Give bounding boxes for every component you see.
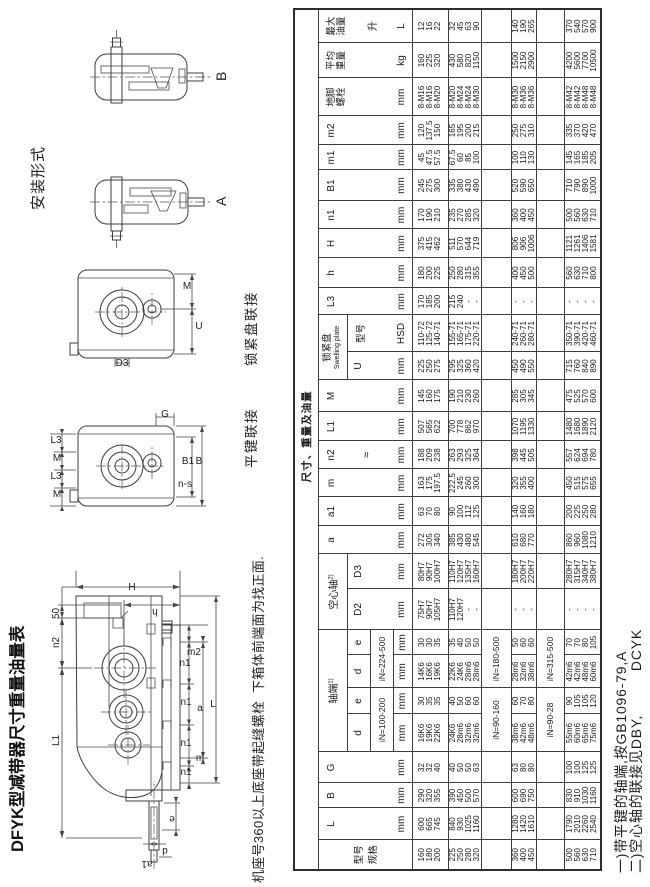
svg-text:L1: L1 bbox=[51, 734, 62, 746]
svg-text:锁紧盘联接: 锁紧盘联接 bbox=[243, 291, 259, 366]
svg-text:m: m bbox=[196, 753, 204, 764]
svg-text:L3: L3 bbox=[50, 435, 62, 446]
svg-text:M: M bbox=[53, 453, 61, 464]
svg-text:平键联接: 平键联接 bbox=[243, 408, 259, 468]
svg-text:L: L bbox=[210, 699, 216, 710]
svg-text:e: e bbox=[169, 813, 175, 824]
svg-text:B: B bbox=[213, 72, 229, 81]
svg-text:n-s: n-s bbox=[178, 479, 192, 490]
svg-text:M: M bbox=[183, 281, 191, 292]
svg-text:n1: n1 bbox=[180, 697, 192, 708]
svg-text:h: h bbox=[152, 606, 158, 617]
svg-text:B: B bbox=[196, 456, 203, 467]
svg-text:n1: n1 bbox=[180, 767, 192, 778]
svg-text:50: 50 bbox=[51, 607, 62, 619]
svg-text:a1: a1 bbox=[141, 858, 153, 869]
svg-text:L3: L3 bbox=[50, 471, 62, 482]
svg-text:H: H bbox=[128, 582, 135, 593]
svg-text:d: d bbox=[162, 845, 168, 856]
svg-text:n2: n2 bbox=[51, 636, 62, 648]
svg-text:a: a bbox=[197, 703, 203, 714]
svg-text:n1: n1 bbox=[179, 658, 191, 669]
svg-text:U: U bbox=[195, 321, 202, 332]
svg-text:m2: m2 bbox=[187, 647, 201, 658]
svg-text:M: M bbox=[53, 489, 61, 500]
svg-text:n1: n1 bbox=[180, 738, 192, 749]
svg-text:D3: D3 bbox=[116, 358, 129, 369]
svg-text:G: G bbox=[161, 409, 169, 420]
svg-text:B1: B1 bbox=[182, 456, 195, 467]
svg-text:A: A bbox=[213, 196, 229, 206]
svg-text:安装形式: 安装形式 bbox=[30, 146, 47, 210]
